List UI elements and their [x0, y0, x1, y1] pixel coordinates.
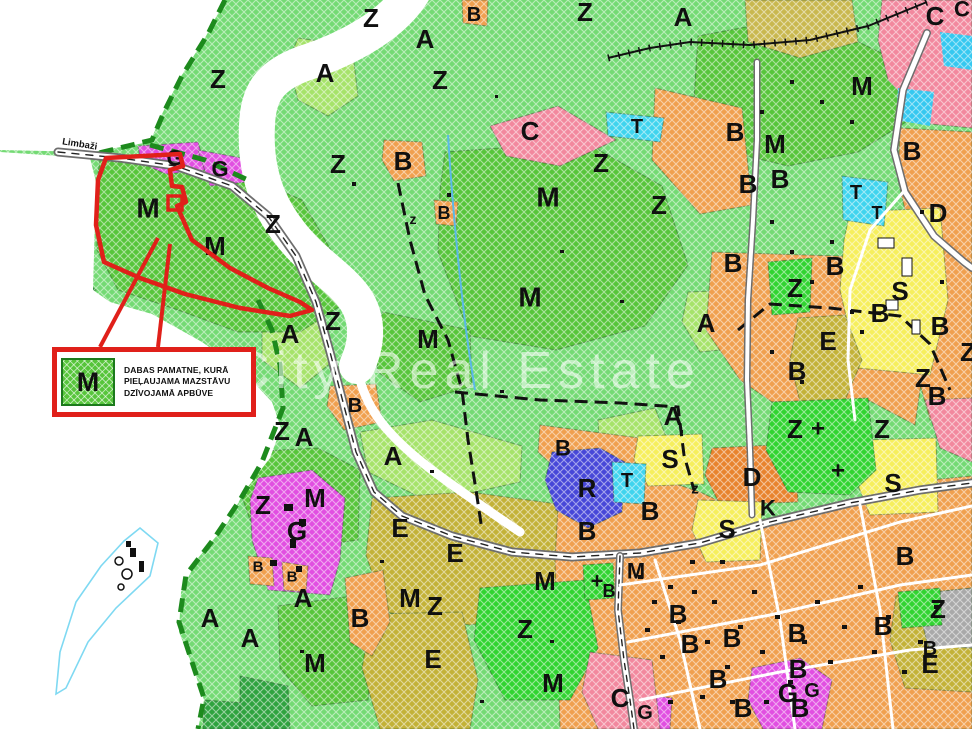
building-footprint — [842, 625, 847, 629]
zone-label: B — [555, 436, 571, 461]
building-footprint — [760, 110, 764, 114]
zone-label: S — [891, 276, 908, 306]
zone-label: B — [724, 248, 743, 278]
building-footprint — [720, 560, 725, 564]
zone-label: B — [351, 603, 370, 633]
zone-label: E — [921, 649, 938, 679]
zone-label: Z — [787, 414, 803, 444]
zone-label: E — [819, 326, 836, 356]
building-footprint — [712, 600, 717, 604]
zone-label: Z — [274, 416, 290, 446]
building-footprint — [284, 504, 293, 511]
zone-label: T — [872, 203, 883, 223]
zone-label: B — [928, 381, 947, 411]
zone-label: A — [294, 583, 313, 613]
zone-label: M — [851, 71, 873, 101]
zone-label: M — [764, 129, 786, 159]
zone-label: A — [316, 58, 335, 88]
building-footprint — [902, 670, 907, 674]
zone-label: B — [826, 251, 845, 281]
zone-label: T — [631, 116, 643, 138]
zone-label: A — [674, 2, 693, 32]
zone-label: B — [669, 599, 688, 629]
zone-label: C — [954, 0, 970, 22]
building-footprint — [820, 100, 824, 104]
zone-label: G — [804, 680, 820, 702]
zone-label: B — [788, 618, 807, 648]
zone-label: B — [603, 581, 616, 601]
zone-label: R — [578, 473, 597, 503]
zone-label: A — [295, 422, 314, 452]
zone-label: Z — [265, 209, 281, 239]
zone-label: B — [723, 623, 742, 653]
zone-label: B — [578, 516, 597, 546]
zone-label: A — [416, 24, 435, 54]
zone-label: G — [637, 702, 653, 724]
building-footprint — [652, 600, 657, 604]
zone-label: B — [734, 693, 753, 723]
zone-label: M — [536, 182, 559, 213]
building-footprint — [878, 238, 894, 248]
zone-label: A — [241, 623, 260, 653]
zone-label: B — [788, 356, 807, 386]
building-footprint — [380, 560, 384, 563]
building-footprint — [912, 320, 920, 334]
zone-label: Z — [363, 3, 379, 33]
zone-label: B — [681, 629, 700, 659]
building-footprint — [692, 590, 697, 594]
building-footprint — [480, 700, 484, 703]
building-footprint — [850, 120, 854, 124]
zone-label: S — [884, 468, 901, 498]
legend-swatch-letter: M — [77, 367, 100, 398]
building-footprint — [872, 650, 877, 654]
zone-label: Z — [577, 0, 593, 27]
building-footprint — [850, 310, 854, 314]
zone-label: Z — [427, 591, 443, 621]
zone-label: M — [542, 668, 564, 698]
zone-label: B — [739, 169, 758, 199]
zone-label: B — [874, 611, 893, 641]
building-footprint — [764, 700, 769, 704]
zone-label: C — [521, 116, 540, 146]
zone-label: C — [926, 1, 945, 31]
building-footprint — [495, 95, 498, 98]
zone-label: S — [661, 444, 678, 474]
building-footprint — [815, 600, 820, 604]
legend-text: DABAS PAMATNE, KURĀ PIEĻAUJAMA MAZSTĀVU … — [124, 365, 230, 398]
building-footprint — [560, 250, 564, 253]
building-footprint — [352, 182, 356, 186]
zone-label: E — [446, 538, 463, 568]
building-footprint — [690, 560, 695, 564]
zone-label: Z — [210, 64, 226, 94]
zone-label: z — [410, 211, 417, 227]
zone-label: B — [438, 203, 451, 223]
building-footprint — [270, 560, 277, 566]
building-footprint — [902, 258, 912, 276]
zone-label: T — [850, 182, 862, 204]
building-footprint — [620, 300, 624, 303]
zone-label: B — [709, 664, 728, 694]
zone-label: C — [611, 683, 630, 713]
zone-label: Z — [255, 490, 271, 520]
building-footprint — [790, 80, 794, 84]
zoning-map[interactable]: ZZAZZAZZZZZZZZZZZZZZZzzAAAAAAAAAMMMMMMMM… — [0, 0, 972, 729]
zone-label: G — [287, 516, 307, 546]
building-footprint — [130, 548, 136, 557]
zone-label: Z — [874, 414, 890, 444]
zone-label: B — [467, 4, 481, 26]
zone-label: G — [211, 157, 228, 182]
building-footprint — [447, 193, 451, 197]
zone-label: Z — [787, 273, 803, 303]
zone-label: D — [743, 462, 762, 492]
zone-label: B — [394, 146, 413, 176]
zone-label: S — [718, 514, 735, 544]
zone-label: B — [348, 395, 362, 417]
zone-label: A — [384, 441, 403, 471]
zone-label: B — [771, 164, 790, 194]
zone-label: D — [929, 198, 948, 228]
zone-label: + — [591, 569, 604, 594]
zone-label: z — [691, 481, 699, 498]
building-footprint — [550, 640, 554, 643]
building-footprint — [770, 220, 774, 224]
zone-label: A — [201, 603, 220, 633]
legend-line-2: PIEĻAUJAMA MAZSTĀVU — [124, 376, 230, 387]
zone-label: B — [641, 496, 660, 526]
building-footprint — [700, 695, 705, 699]
building-footprint — [705, 640, 710, 644]
zone-label: G — [778, 678, 798, 708]
zone-label: B — [726, 117, 745, 147]
zone-label: B — [931, 311, 950, 341]
zone-label: M — [417, 324, 439, 354]
building-footprint — [830, 240, 834, 244]
zone-label: M — [627, 559, 645, 584]
zone-label: K — [760, 496, 776, 521]
zone-label: Z — [432, 65, 448, 95]
zone-label: E — [391, 513, 408, 543]
zone-label: M — [534, 566, 556, 596]
zone-label: Z — [593, 148, 609, 178]
building-footprint — [500, 390, 504, 393]
zone-label: Z — [517, 614, 533, 644]
legend-box: M DABAS PAMATNE, KURĀ PIEĻAUJAMA MAZSTĀV… — [52, 347, 256, 417]
building-footprint — [139, 561, 144, 572]
building-footprint — [668, 700, 673, 704]
zone-label: A — [281, 319, 300, 349]
zone-label: A — [697, 308, 716, 338]
legend-line-3: DZĪVOJAMĀ APBŪVE — [124, 388, 230, 399]
building-footprint — [790, 250, 794, 254]
legend-line-1: DABAS PAMATNE, KURĀ — [124, 365, 230, 376]
building-footprint — [660, 655, 665, 659]
zone-label: + — [831, 458, 845, 485]
zone-label: M — [304, 483, 326, 513]
zone-label: Z — [651, 190, 667, 220]
building-footprint — [940, 280, 944, 284]
building-footprint — [828, 660, 833, 664]
building-footprint — [430, 470, 434, 473]
zone-label: Z — [325, 306, 341, 336]
building-footprint — [860, 330, 864, 334]
zone-label: + — [811, 416, 825, 443]
zone-label: Z — [960, 337, 972, 367]
building-footprint — [775, 615, 780, 619]
building-footprint — [668, 585, 673, 589]
zone-label: M — [136, 193, 159, 224]
zone-label: M — [518, 282, 541, 313]
zone-label: Z — [930, 594, 946, 624]
zone-label: M — [399, 583, 421, 613]
zone-label: B — [903, 136, 922, 166]
building-footprint — [760, 650, 765, 654]
zone-label: B — [253, 559, 264, 576]
building-footprint — [126, 541, 131, 547]
building-footprint — [770, 350, 774, 354]
building-footprint — [858, 585, 863, 589]
building-footprint — [752, 590, 757, 594]
zone-label: B — [871, 298, 890, 328]
building-footprint — [810, 280, 814, 284]
zone-label: A — [664, 401, 683, 431]
zone-label: T — [621, 470, 633, 492]
building-footprint — [645, 628, 650, 632]
zone-label: Z — [330, 149, 346, 179]
legend-swatch: M — [61, 358, 115, 406]
zone-label: M — [304, 648, 326, 678]
zone-label: B — [287, 569, 298, 586]
building-footprint — [920, 210, 924, 214]
zone-label: E — [424, 644, 441, 674]
zone-label: B — [896, 541, 915, 571]
